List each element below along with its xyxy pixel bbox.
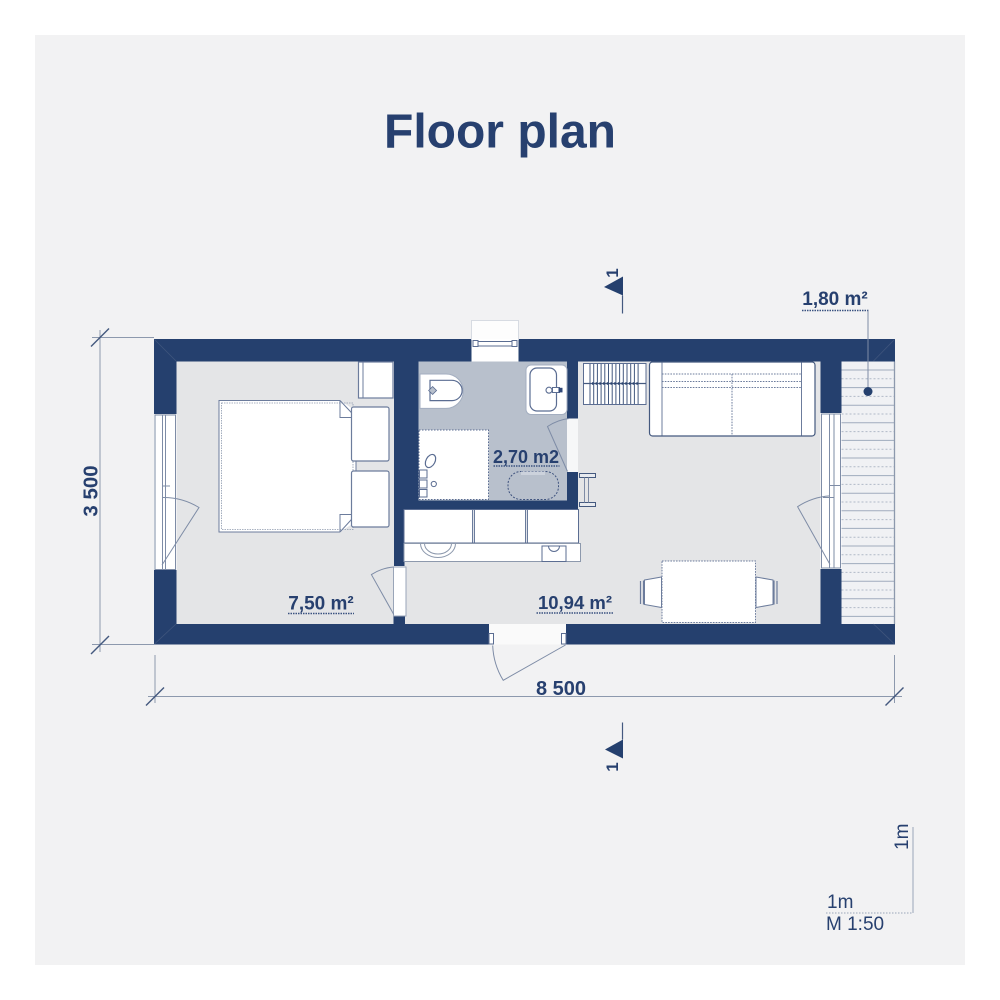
svg-text:2,70 m2: 2,70 m2	[493, 447, 559, 467]
svg-text:1: 1	[603, 762, 622, 771]
svg-text:3 500: 3 500	[80, 465, 103, 516]
svg-text:10,94 m²: 10,94 m²	[538, 592, 612, 613]
svg-text:1m: 1m	[827, 892, 853, 913]
svg-text:8 500: 8 500	[536, 678, 586, 700]
svg-text:M 1:50: M 1:50	[826, 914, 884, 935]
svg-text:Floor plan: Floor plan	[384, 106, 616, 159]
svg-text:1: 1	[603, 268, 622, 277]
svg-text:1,80 m²: 1,80 m²	[802, 289, 867, 310]
svg-text:1m: 1m	[892, 824, 913, 850]
svg-text:7,50 m²: 7,50 m²	[288, 594, 353, 615]
